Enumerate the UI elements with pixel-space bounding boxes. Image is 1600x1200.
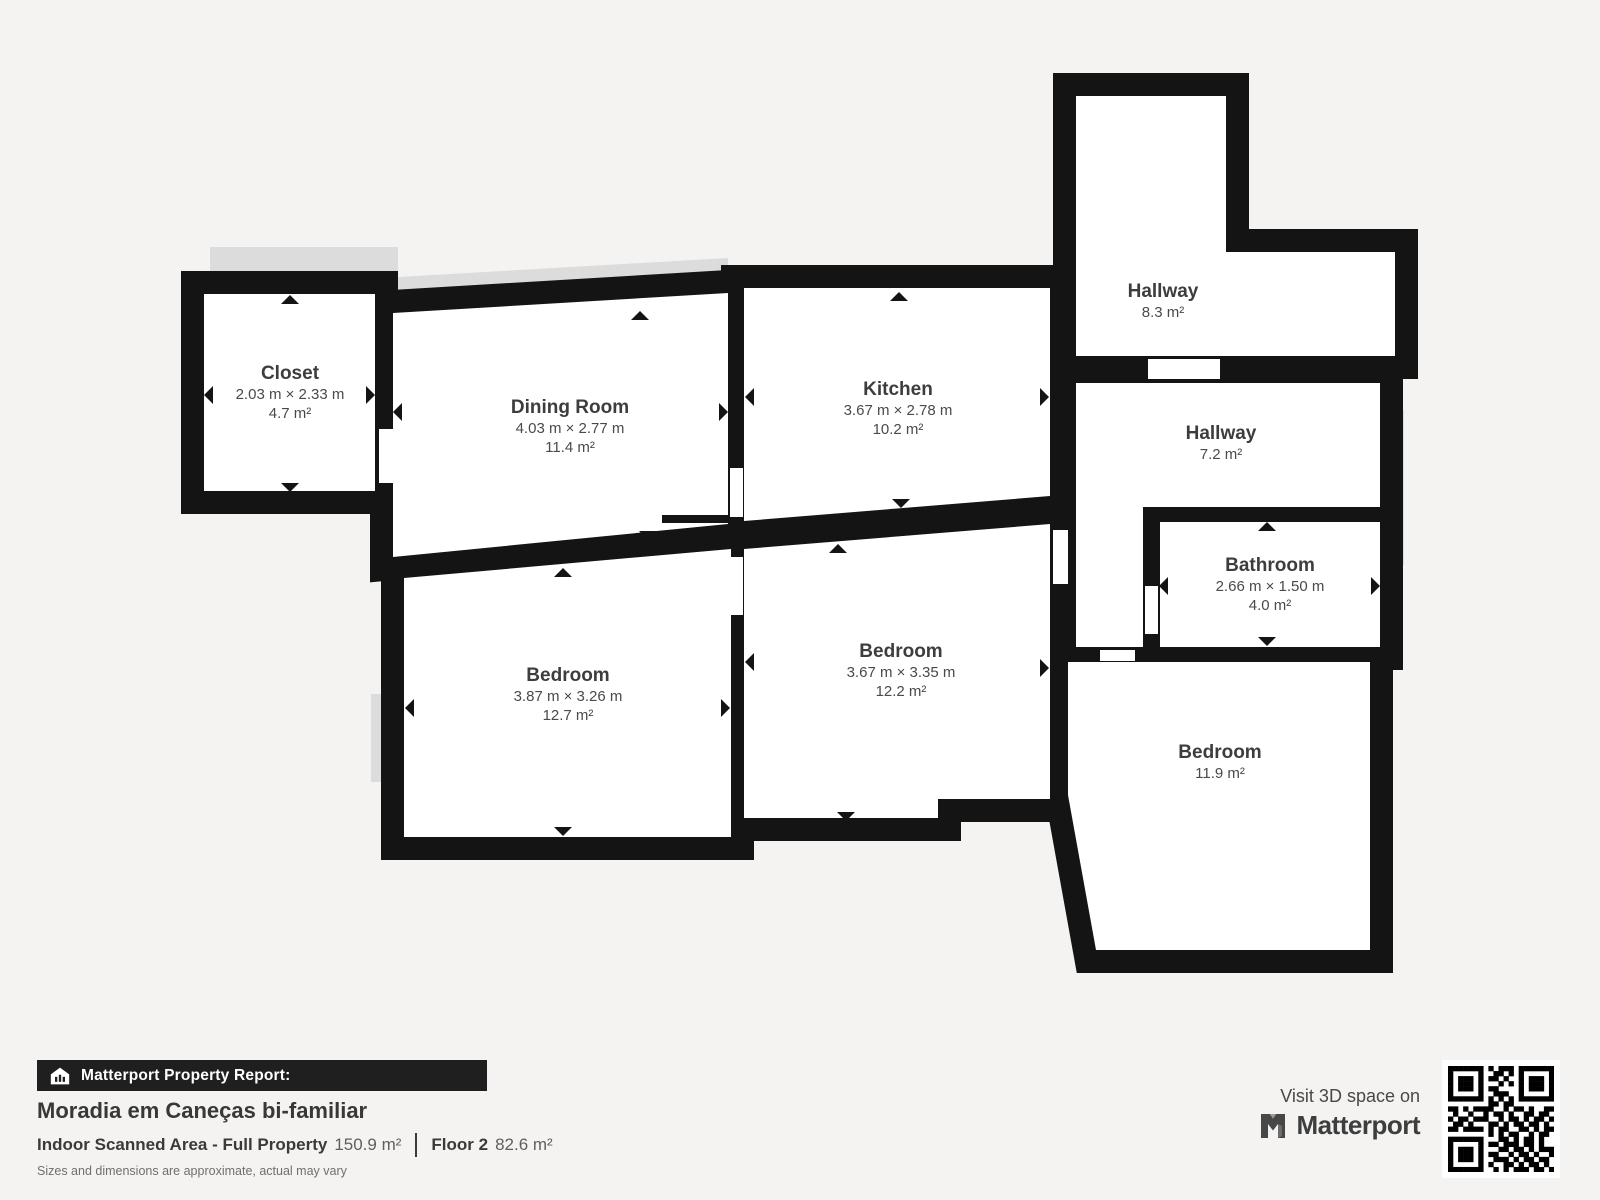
area-summary: Indoor Scanned Area - Full Property 150.… <box>37 1133 553 1157</box>
room-label-bathroom: Bathroom 2.66 m × 1.50 m 4.0 m² <box>1216 555 1325 615</box>
property-title: Moradia em Caneças bi-familiar <box>37 1098 367 1124</box>
room-name: Bedroom <box>1178 742 1261 764</box>
room-dimensions: 3.67 m × 3.35 m <box>847 663 956 682</box>
matterport-brand: Matterport <box>1120 1110 1420 1141</box>
room-area: 11.9 m² <box>1178 764 1261 783</box>
room-name: Bathroom <box>1216 555 1325 577</box>
floor-value: 82.6 m² <box>495 1135 553 1155</box>
room-dimensions: 3.87 m × 3.26 m <box>514 687 623 706</box>
room-dimensions: 2.66 m × 1.50 m <box>1216 577 1325 596</box>
room-area: 4.7 m² <box>236 404 345 423</box>
wall-stub <box>662 515 730 523</box>
floor-label: Floor 2 <box>431 1135 488 1155</box>
room-area: 11.4 m² <box>511 438 629 457</box>
scanned-area-value: 150.9 m² <box>334 1135 401 1155</box>
matterport-logo-icon <box>1258 1111 1288 1141</box>
report-header-bar: Matterport Property Report: <box>37 1060 487 1091</box>
room-dimensions: 4.03 m × 2.77 m <box>511 419 629 438</box>
floorplan-drawing <box>0 0 1600 1005</box>
matterport-wordmark: Matterport <box>1296 1110 1420 1141</box>
room-area: 12.2 m² <box>847 682 956 701</box>
room-label-hallway-top: Hallway 8.3 m² <box>1128 281 1199 322</box>
disclaimer-text: Sizes and dimensions are approximate, ac… <box>37 1164 347 1178</box>
room-dimensions: 3.67 m × 2.78 m <box>844 401 953 420</box>
room-label-bedroom-right: Bedroom 11.9 m² <box>1178 742 1261 783</box>
visit-3d-label: Visit 3D space on <box>1120 1086 1420 1107</box>
divider <box>415 1133 417 1157</box>
room-name: Kitchen <box>844 379 953 401</box>
room-label-kitchen: Kitchen 3.67 m × 2.78 m 10.2 m² <box>844 379 953 439</box>
property-report-page: Closet 2.03 m × 2.33 m 4.7 m² Dining Roo… <box>0 0 1600 1200</box>
report-bar-label: Matterport Property Report: <box>81 1067 291 1085</box>
room-name: Dining Room <box>511 397 629 419</box>
qr-code <box>1442 1060 1560 1178</box>
room-area: 10.2 m² <box>844 420 953 439</box>
room-bedroom-right <box>1068 662 1370 950</box>
house-icon <box>50 1066 70 1086</box>
room-dimensions: 2.03 m × 2.33 m <box>236 385 345 404</box>
room-label-bedroom-middle: Bedroom 3.67 m × 3.35 m 12.2 m² <box>847 641 956 701</box>
room-label-hallway-lower: Hallway 7.2 m² <box>1186 423 1257 464</box>
room-area: 12.7 m² <box>514 706 623 725</box>
room-name: Bedroom <box>847 641 956 663</box>
room-label-closet: Closet 2.03 m × 2.33 m 4.7 m² <box>236 363 345 423</box>
room-name: Closet <box>236 363 345 385</box>
room-name: Hallway <box>1128 281 1199 303</box>
room-label-bedroom-left: Bedroom 3.87 m × 3.26 m 12.7 m² <box>514 665 623 725</box>
room-name: Hallway <box>1186 423 1257 445</box>
room-name: Bedroom <box>514 665 623 687</box>
room-label-dining: Dining Room 4.03 m × 2.77 m 11.4 m² <box>511 397 629 457</box>
room-area: 7.2 m² <box>1186 445 1257 464</box>
room-area: 8.3 m² <box>1128 303 1199 322</box>
scanned-area-label: Indoor Scanned Area - Full Property <box>37 1135 327 1155</box>
room-area: 4.0 m² <box>1216 596 1325 615</box>
